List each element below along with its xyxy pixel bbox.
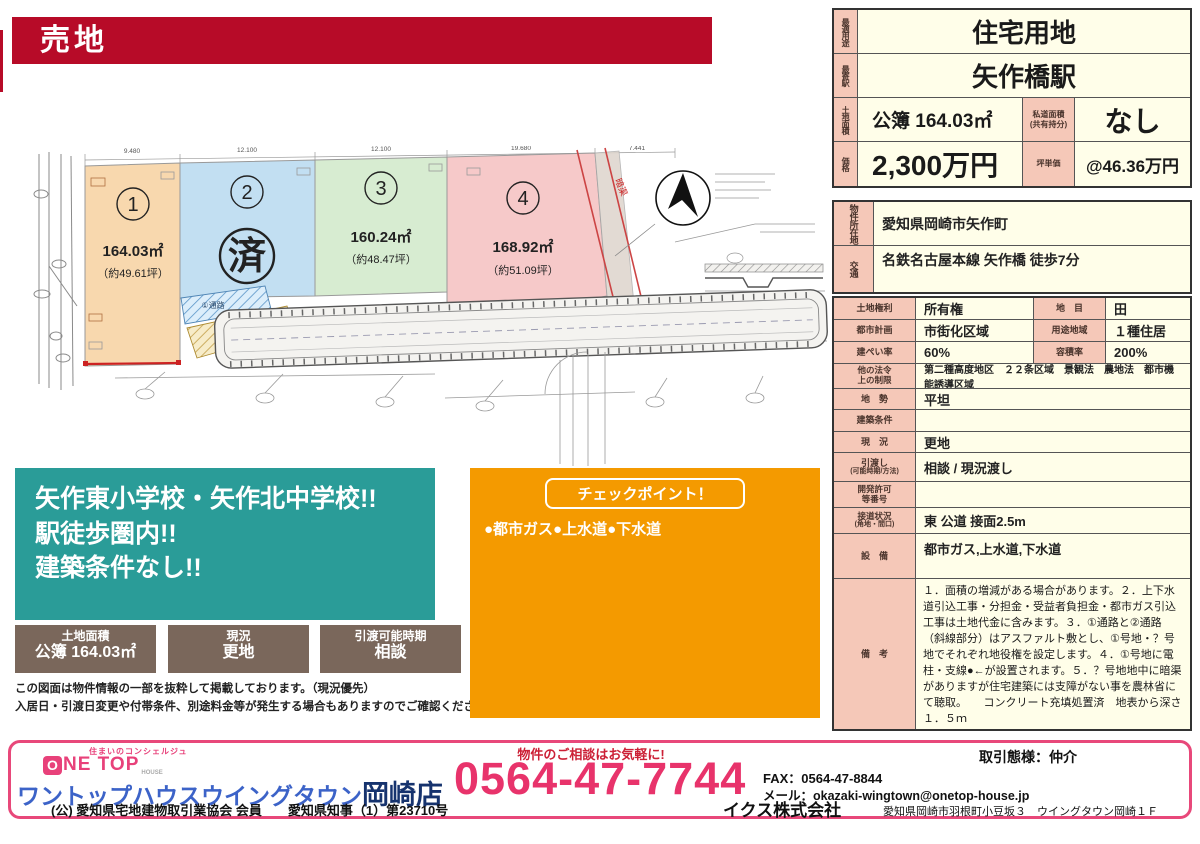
detail-value-development-permit: [916, 482, 1190, 507]
svg-text:168.92㎡: 168.92㎡: [493, 238, 554, 256]
svg-text:12.100: 12.100: [371, 146, 391, 153]
lot-2: 2 済: [180, 160, 315, 298]
detail-label-remarks: 備 考: [834, 579, 916, 729]
svg-text:1: 1: [127, 194, 138, 216]
checkpoint-badge: チェックポイント！: [545, 478, 745, 509]
detail-value-other-laws: 第二種高度地区 ２２条区域 景観法 農地法 都市機能誘導区域: [916, 364, 1190, 388]
detail-label-land-category: 地 目: [1034, 298, 1106, 319]
detail-table-top: 物件所在地 愛知県岡崎市矢作町 交通 名鉄名古屋本線 矢作橋 徒歩7分: [832, 200, 1192, 294]
disclaimer: この図面は物件情報の一部を抜粋して掲載しております。（現況優先） 入居日・引渡日…: [15, 681, 498, 717]
info-box-value: 更地: [168, 643, 309, 663]
detail-label-rights: 土地権利: [834, 298, 916, 319]
svg-text:済: 済: [228, 236, 267, 278]
info-box-value: 相談: [320, 643, 461, 663]
detail-value-remarks: １．面積の増減がある場合があります。２．上下水道引込工事・分担金・受益者負担金・…: [916, 579, 1190, 729]
disclaimer-line-2: 入居日・引渡日変更や付帯条件、別途料金等が発生する場合もありますのでご確認くださ…: [15, 699, 498, 717]
summary-label-price: 価格: [834, 142, 858, 186]
detail-label-floor-ratio: 容積率: [1034, 342, 1106, 363]
svg-text:9.480: 9.480: [124, 148, 141, 155]
svg-text:4: 4: [517, 188, 528, 210]
summary-value-private-road: なし: [1075, 98, 1190, 141]
detail-value-land-category: 田: [1106, 298, 1190, 319]
detail-value-floor-ratio: 200%: [1106, 342, 1190, 363]
highlight-line-2: 駅徒歩圏内!!: [35, 517, 415, 552]
summary-table: 最適用途 住宅用地 最寄駅 矢作橋駅 土地面積 公簿 164.03㎡ 私道面積(…: [832, 8, 1192, 188]
summary-label-area: 土地面積: [834, 98, 858, 141]
checkpoint-body: ●都市ガス●上水道●下水道: [484, 518, 806, 539]
detail-row-city-planning: 都市計画 市街化区域 用途地域 １種住居: [834, 320, 1190, 342]
info-box-handover-time: 引渡可能時期 相談: [320, 625, 461, 673]
info-box-value: 公簿 164.03㎡: [15, 643, 156, 663]
info-box-label: 土地面積: [15, 629, 156, 643]
summary-row-station: 最寄駅 矢作橋駅: [834, 54, 1190, 98]
detail-value-terrain: 平坦: [916, 389, 1190, 409]
summary-row-area: 土地面積 公簿 164.03㎡ 私道面積(共有持分) なし: [834, 98, 1190, 142]
logo-o-icon: O: [43, 756, 62, 775]
detail-row-rights: 土地権利 所有権 地 目 田: [834, 298, 1190, 320]
info-box-land-area: 土地面積 公簿 164.03㎡: [15, 625, 156, 673]
summary-value-area: 公簿 164.03㎡: [858, 98, 1023, 141]
office-address: 愛知県岡崎市羽根町小豆坂３ ウイングタウン岡崎１Ｆ: [883, 803, 1158, 819]
detail-value-city-planning: 市街化区域: [916, 320, 1034, 341]
detail-row-access: 交通 名鉄名古屋本線 矢作橋 徒歩7分: [834, 246, 1190, 292]
detail-value-handover: 相談 / 現況渡し: [916, 453, 1190, 481]
detail-value-coverage: 60%: [916, 342, 1034, 363]
detail-label-current-state: 現 況: [834, 432, 916, 452]
detail-row-remarks: 備 考 １．面積の増減がある場合があります。２．上下水道引込工事・分担金・受益者…: [834, 579, 1190, 729]
page-title: 売地: [12, 17, 712, 64]
svg-text:（約51.09坪）: （約51.09坪）: [487, 263, 559, 277]
detail-value-zoning: １種住居: [1106, 320, 1190, 341]
summary-label-unit-price: 坪単価: [1023, 142, 1075, 186]
detail-label-handover: 引渡し(可能時期/方法): [834, 453, 916, 481]
summary-value-unit-price: @46.36万円: [1075, 142, 1190, 186]
detail-label-coverage: 建ぺい率: [834, 342, 916, 363]
email-address: メール：okazaki-wingtown@onetop-house.jp: [763, 785, 1029, 804]
svg-text:（約49.61坪）: （約49.61坪）: [97, 266, 169, 280]
detail-value-current-state: 更地: [916, 432, 1190, 452]
info-box-current-state: 現況 更地: [168, 625, 309, 673]
license-text: (公) 愛知県宅地建物取引業協会 会員 愛知県知事（1）第23710号: [51, 800, 448, 819]
highlight-box: 矢作東小学校・矢作北中学校!! 駅徒歩圏内!! 建築条件なし!!: [15, 468, 435, 620]
road-strip: [214, 289, 828, 368]
summary-value-station: 矢作橋駅: [858, 54, 1190, 97]
detail-row-address: 物件所在地 愛知県岡崎市矢作町: [834, 202, 1190, 246]
left-road: [34, 152, 77, 390]
detail-label-building-conditions: 建築条件: [834, 410, 916, 431]
flyer-page: 売地: [0, 0, 1200, 844]
disclaimer-line-1: この図面は物件情報の一部を抜粋して掲載しております。（現況優先）: [15, 681, 498, 699]
checkpoint-box: チェックポイント！ ●都市ガス●上水道●下水道: [470, 468, 820, 718]
detail-row-facilities: 設 備 都市ガス,上水道,下水道: [834, 534, 1190, 579]
detail-row-coverage: 建ぺい率 60% 容積率 200%: [834, 342, 1190, 364]
trade-type: 取引態様：仲介: [979, 747, 1077, 767]
info-box-label: 引渡可能時期: [320, 629, 461, 643]
lower-roads: [115, 352, 764, 466]
detail-row-road-contact: 接道状況(角地・間口) 東 公道 接面2.5m: [834, 508, 1190, 534]
summary-value-use: 住宅用地: [858, 10, 1190, 53]
detail-row-current-state: 現 況 更地: [834, 432, 1190, 453]
left-edge-strip: [0, 30, 3, 92]
detail-label-other-laws: 他の法令上の制限: [834, 364, 916, 388]
summary-row-price: 価格 2,300万円 坪単価 @46.36万円: [834, 142, 1190, 186]
site-plan-map: 9.480 12.100 12.100 19.680 7.441 1 164.0…: [15, 146, 830, 476]
detail-row-terrain: 地 勢 平坦: [834, 389, 1190, 410]
detail-label-address: 物件所在地: [834, 202, 874, 245]
detail-label-city-planning: 都市計画: [834, 320, 916, 341]
detail-label-facilities: 設 備: [834, 534, 916, 578]
svg-text:①通路: ①通路: [201, 300, 224, 310]
highlight-line-3: 建築条件なし!!: [35, 551, 415, 586]
detail-value-road-contact: 東 公道 接面2.5m: [916, 508, 1190, 533]
detail-row-building-conditions: 建築条件: [834, 410, 1190, 432]
detail-row-other-laws: 他の法令上の制限 第二種高度地区 ２２条区域 景観法 農地法 都市機能誘導区域: [834, 364, 1190, 389]
detail-label-terrain: 地 勢: [834, 389, 916, 409]
summary-label-private-road: 私道面積(共有持分): [1023, 98, 1075, 141]
svg-text:160.24㎡: 160.24㎡: [351, 228, 412, 246]
detail-label-zoning: 用途地域: [1034, 320, 1106, 341]
svg-text:7.441: 7.441: [629, 146, 646, 152]
highlight-line-1: 矢作東小学校・矢作北中学校!!: [35, 482, 415, 517]
detail-table-main: 土地権利 所有権 地 目 田 都市計画 市街化区域 用途地域 １種住居 建ぺい率…: [832, 296, 1192, 731]
detail-value-rights: 所有権: [916, 298, 1034, 319]
site-plan-drawing: 9.480 12.100 12.100 19.680 7.441 1 164.0…: [15, 146, 830, 476]
summary-row-use: 最適用途 住宅用地: [834, 10, 1190, 54]
info-box-label: 現況: [168, 629, 309, 643]
detail-value-building-conditions: [916, 410, 1190, 431]
svg-text:12.100: 12.100: [237, 147, 257, 154]
detail-value-access: 名鉄名古屋本線 矢作橋 徒歩7分: [874, 246, 1190, 292]
svg-text:（約48.47坪）: （約48.47坪）: [345, 252, 417, 266]
detail-label-development-permit: 開発許可等番号: [834, 482, 916, 507]
phone-number: 0564-47-7744: [454, 753, 746, 805]
lot-3: 3 160.24㎡ （約48.47坪）: [315, 157, 447, 296]
summary-label-station: 最寄駅: [834, 54, 858, 97]
detail-row-handover: 引渡し(可能時期/方法) 相談 / 現況渡し: [834, 453, 1190, 482]
summary-value-price: 2,300万円: [858, 142, 1023, 186]
svg-text:2: 2: [241, 182, 252, 204]
summary-label-use: 最適用途: [834, 10, 858, 53]
lot-1: 1 164.03㎡ （約49.61坪）: [83, 163, 181, 366]
detail-value-facilities: 都市ガス,上水道,下水道: [916, 534, 1190, 578]
svg-text:3: 3: [375, 178, 386, 200]
detail-row-development-permit: 開発許可等番号: [834, 482, 1190, 508]
svg-text:164.03㎡: 164.03㎡: [103, 242, 164, 260]
detail-label-access: 交通: [834, 246, 874, 292]
detail-value-address: 愛知県岡崎市矢作町: [874, 202, 1190, 245]
north-arrow-icon: [615, 171, 710, 256]
svg-text:19.680: 19.680: [511, 146, 531, 152]
footer: 住まいのコンシェルジュ O NE TOP HOUSE ワントップハウスウイングタ…: [8, 740, 1192, 819]
detail-label-road-contact: 接道状況(角地・間口): [834, 508, 916, 533]
